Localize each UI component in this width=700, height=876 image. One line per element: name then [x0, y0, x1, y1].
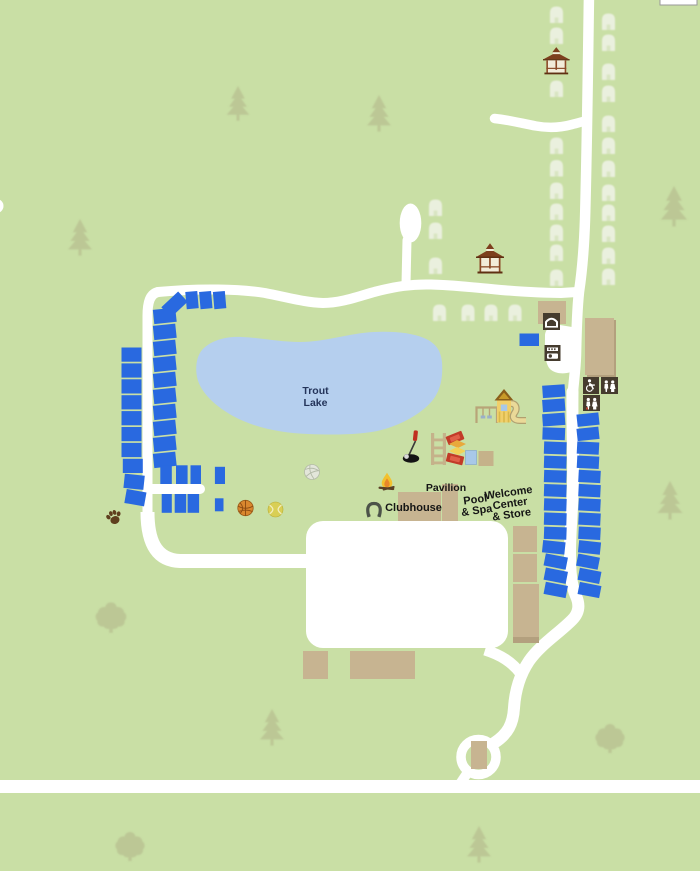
svg-text:Clubhouse: Clubhouse: [385, 502, 442, 514]
svg-text:Trout: Trout: [302, 385, 329, 397]
svg-text:Lake: Lake: [304, 397, 328, 409]
svg-text:Pavilion: Pavilion: [426, 482, 466, 494]
